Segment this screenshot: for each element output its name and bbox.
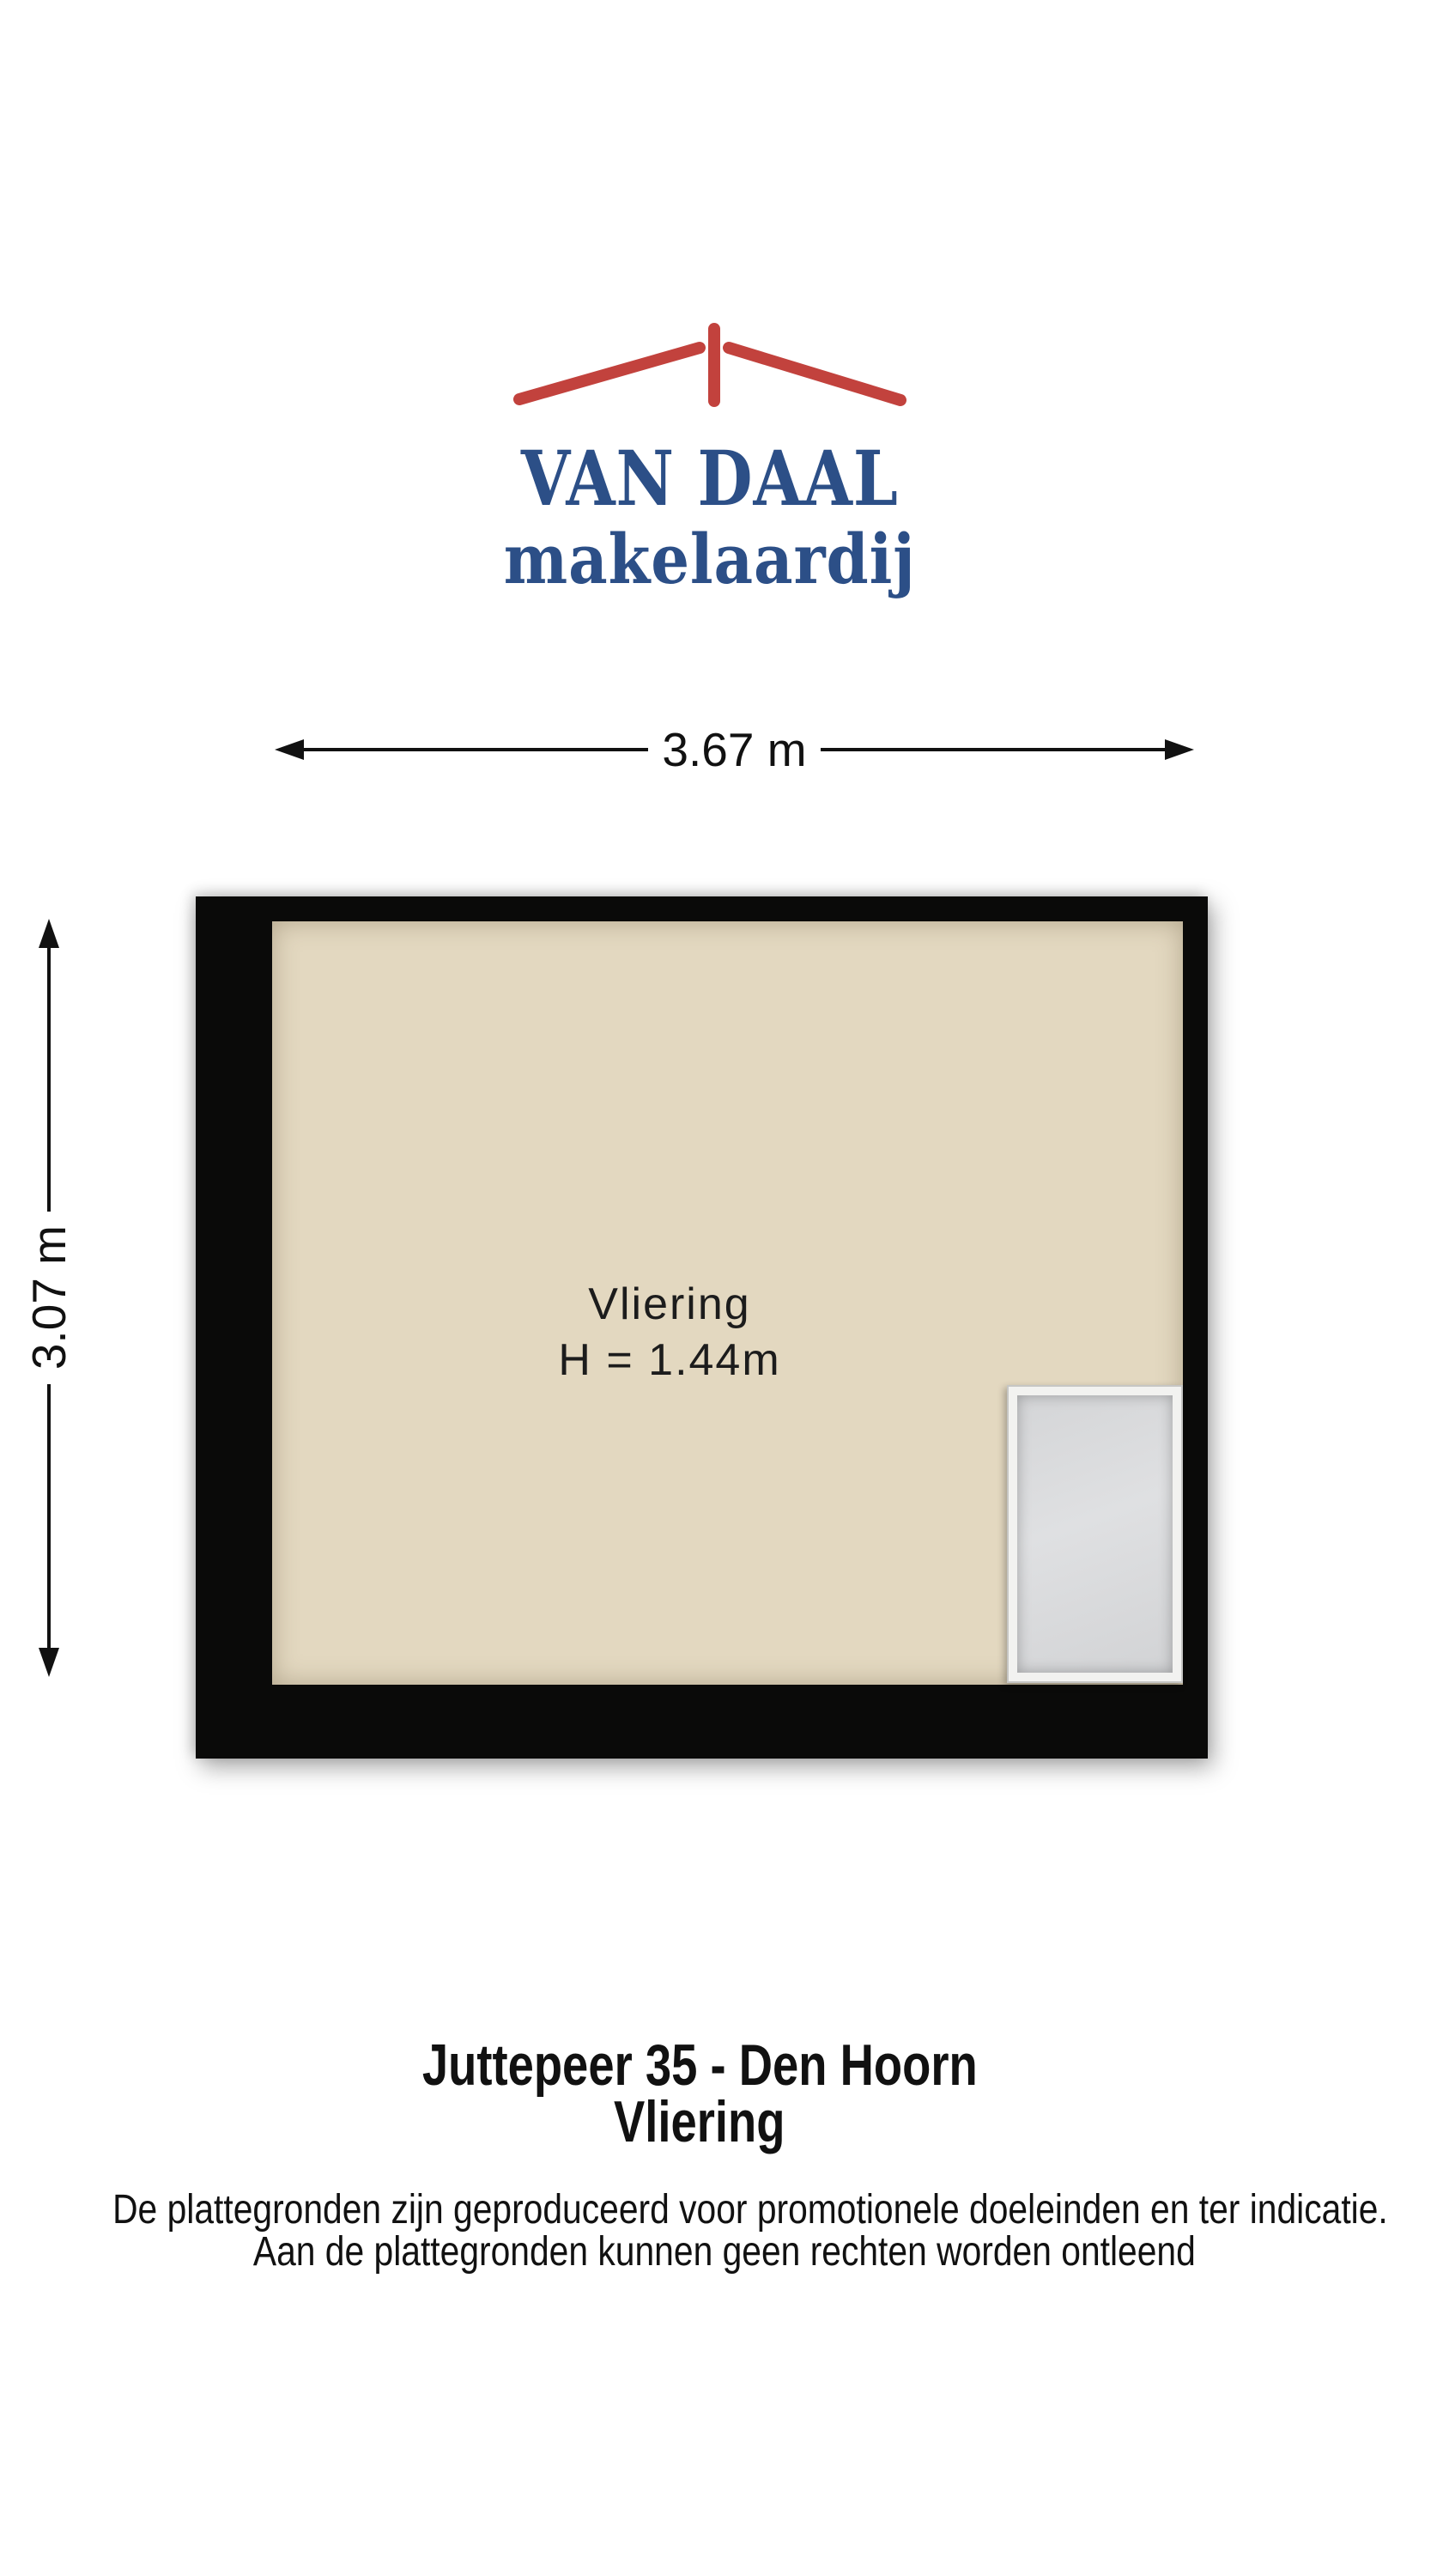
- arrow-down-icon: [39, 1648, 59, 1677]
- width-dimension: 3.67 m: [275, 739, 1194, 760]
- stair-hatch-fill: [1017, 1395, 1173, 1673]
- arrow-right-icon: [1165, 739, 1194, 760]
- dimension-line: [304, 748, 648, 751]
- floorplan-page: VAN DAAL makelaardij 3.67 m 3.07 m Vlier…: [0, 0, 1449, 2576]
- roof-icon: [512, 322, 907, 408]
- address-title: Juttepeer 35 - Den Hoorn: [422, 2037, 978, 2093]
- logo: [0, 322, 1420, 412]
- brand-name: VAN DAAL: [0, 440, 1420, 516]
- room-vliering: Vliering H = 1.44m: [272, 921, 1183, 1685]
- stair-hatch-opening: [1007, 1385, 1183, 1683]
- arrow-left-icon: [275, 739, 304, 760]
- room-height: H = 1.44m: [558, 1333, 780, 1388]
- disclaimer: De plattegronden zijn geproduceerd voor …: [0, 2189, 1449, 2273]
- height-dimension: 3.07 m: [39, 919, 59, 1677]
- room-name: Vliering: [558, 1277, 780, 1333]
- arrow-up-icon: [39, 919, 59, 948]
- brand-name-text: VAN DAAL: [521, 440, 899, 516]
- disclaimer-line1: De plattegronden zijn geproduceerd voor …: [112, 2189, 1388, 2231]
- room-label: Vliering H = 1.44m: [558, 1277, 780, 1388]
- brand-subtitle-text: makelaardij: [504, 525, 916, 593]
- plan-title: Juttepeer 35 - Den Hoorn Vliering: [0, 2037, 1399, 2150]
- dimension-line: [47, 948, 51, 1212]
- disclaimer-line2: Aan de plattegronden kunnen geen rechten…: [253, 2231, 1196, 2273]
- brand-subtitle: makelaardij: [0, 525, 1420, 593]
- width-dimension-label: 3.67 m: [648, 739, 820, 760]
- dimension-line: [47, 1384, 51, 1648]
- floorplan-walls: Vliering H = 1.44m: [196, 896, 1208, 1759]
- dimension-line: [821, 748, 1165, 751]
- floor-title: Vliering: [614, 2093, 785, 2150]
- height-dimension-label: 3.07 m: [21, 1212, 76, 1383]
